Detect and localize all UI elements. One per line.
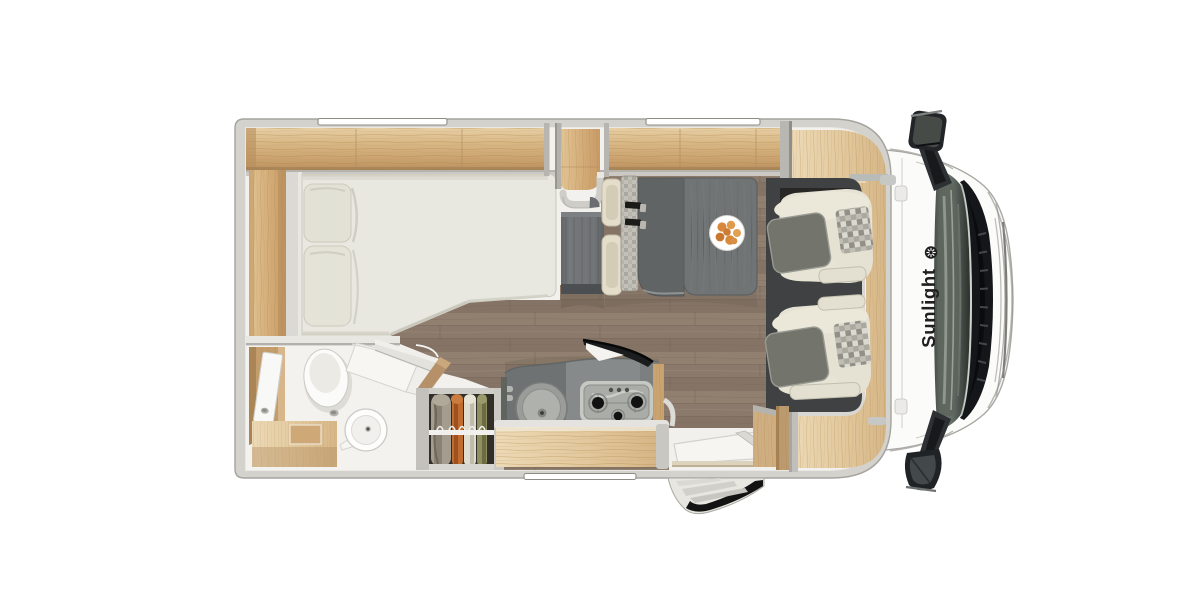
svg-text:Sunlight: Sunlight <box>918 268 939 348</box>
